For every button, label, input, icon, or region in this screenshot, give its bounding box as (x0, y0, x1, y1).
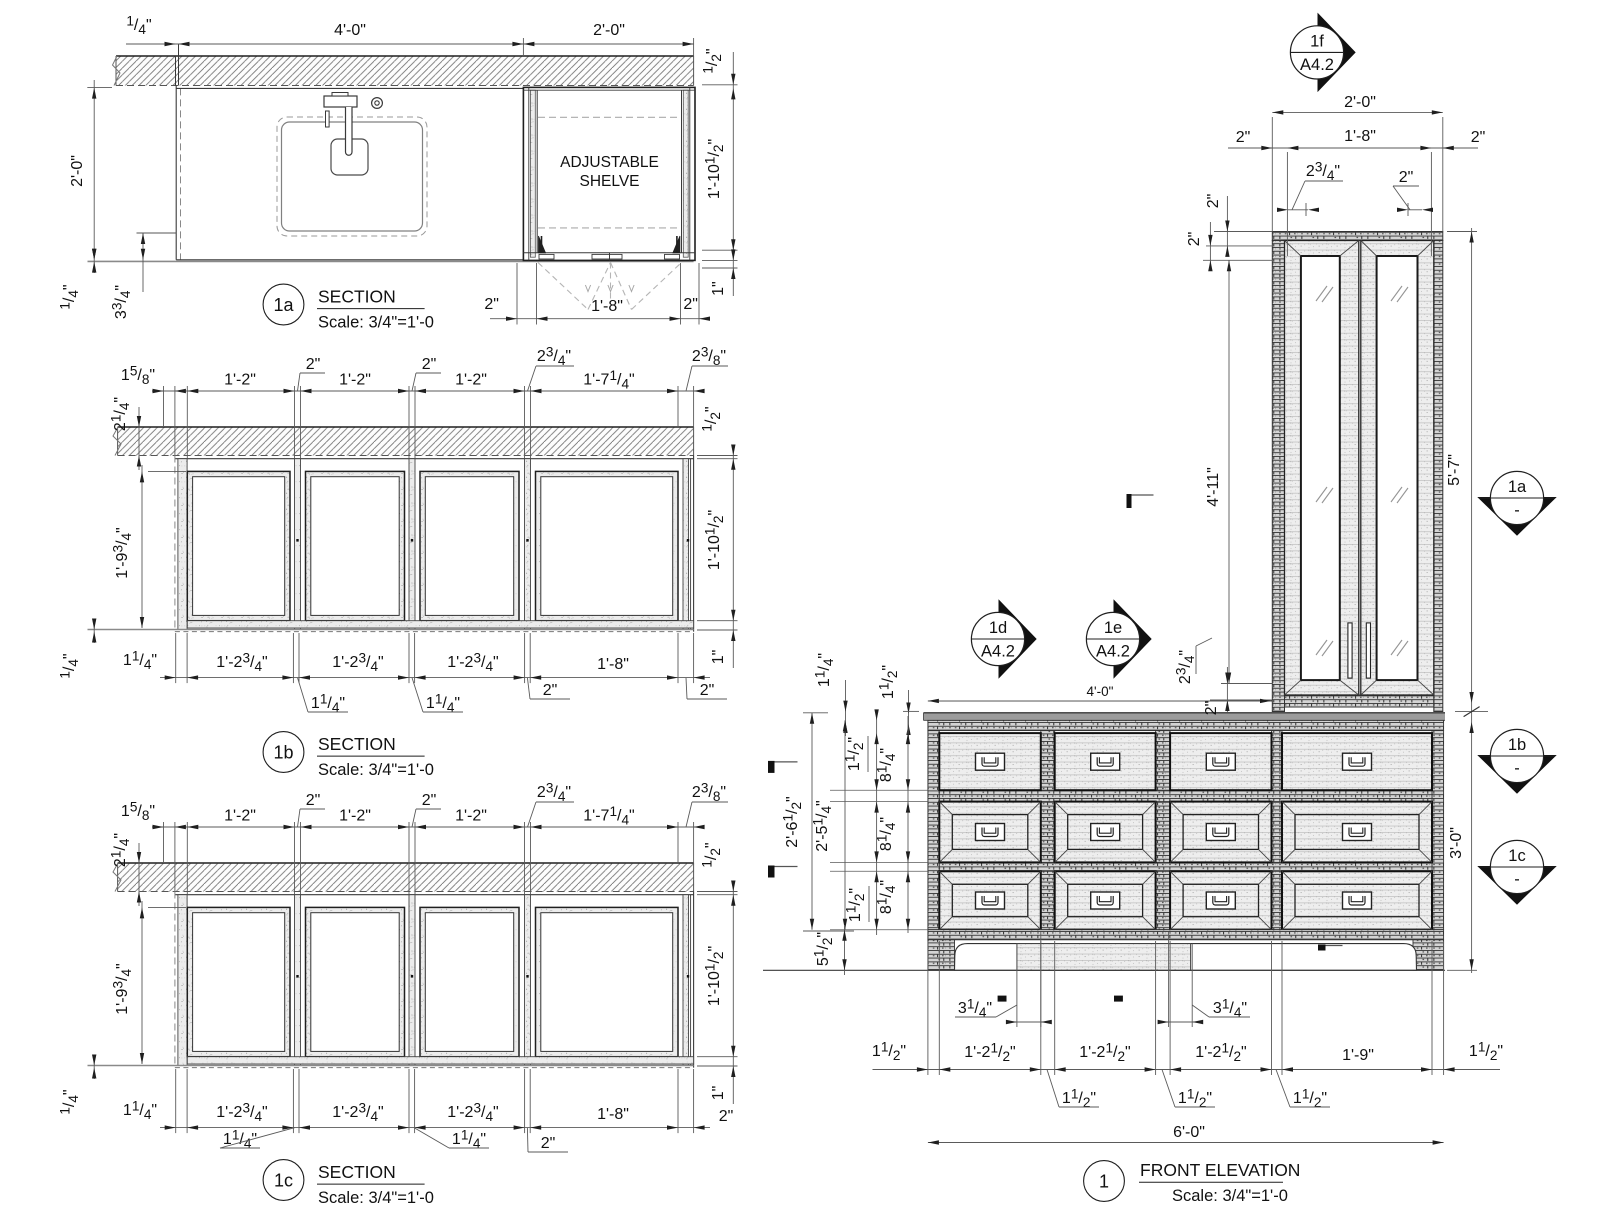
svg-text:31/4": 31/4" (1213, 996, 1247, 1019)
svg-text:ADJUSTABLE: ADJUSTABLE (560, 154, 659, 171)
svg-text:SECTION: SECTION (318, 734, 396, 754)
svg-text:2": 2" (1236, 129, 1251, 146)
svg-text:2'-0": 2'-0" (593, 22, 625, 39)
svg-text:11/2": 11/2" (1469, 1039, 1503, 1062)
svg-text:1'-2": 1'-2" (339, 808, 371, 825)
svg-text:A4.2: A4.2 (1096, 643, 1130, 661)
svg-text:23/4": 23/4" (1306, 159, 1340, 182)
svg-text:81/4": 81/4" (874, 817, 897, 851)
svg-text:1'-8": 1'-8" (597, 1106, 629, 1123)
svg-text:21/4": 21/4" (108, 833, 131, 867)
svg-text:2": 2" (1471, 129, 1486, 146)
svg-text:4'-11": 4'-11" (1205, 467, 1222, 507)
svg-text:11/2": 11/2" (1178, 1086, 1212, 1109)
svg-text:1c: 1c (274, 1171, 293, 1191)
svg-text:-: - (1514, 871, 1520, 889)
svg-text:81/4": 81/4" (874, 880, 897, 914)
svg-text:2": 2" (1399, 169, 1414, 186)
svg-text:1'-2": 1'-2" (339, 372, 371, 389)
svg-text:11/4": 11/4" (123, 648, 157, 671)
svg-text:4'-0": 4'-0" (334, 22, 366, 39)
svg-text:81/4": 81/4" (874, 748, 897, 782)
svg-text:SECTION: SECTION (318, 1162, 396, 1182)
svg-text:SHELVE: SHELVE (579, 173, 639, 190)
svg-text:1b: 1b (1508, 736, 1526, 754)
svg-text:2": 2" (422, 792, 437, 809)
svg-text:11/4": 11/4" (311, 691, 345, 714)
svg-text:23/4": 23/4" (537, 344, 571, 367)
svg-text:1a: 1a (273, 295, 294, 315)
svg-text:2": 2" (700, 682, 715, 699)
svg-text:2": 2" (541, 1135, 556, 1152)
svg-text:4'-0": 4'-0" (1087, 684, 1114, 699)
svg-text:1": 1" (710, 281, 727, 296)
svg-text:1'-8": 1'-8" (1344, 128, 1376, 145)
svg-text:11/2": 11/2" (1062, 1086, 1096, 1109)
svg-text:1d: 1d (989, 619, 1007, 637)
svg-text:2": 2" (484, 296, 499, 313)
svg-text:1": 1" (710, 650, 727, 665)
svg-text:33/4": 33/4" (109, 285, 132, 319)
svg-text:11/4": 11/4" (452, 1127, 486, 1150)
svg-text:1'-2": 1'-2" (224, 372, 256, 389)
svg-text:2": 2" (719, 1108, 734, 1125)
svg-text:3'-0": 3'-0" (1448, 827, 1465, 859)
svg-text:1: 1 (1099, 1172, 1109, 1192)
svg-text:15/8": 15/8" (121, 799, 155, 822)
svg-text:-: - (1514, 760, 1520, 778)
svg-text:2": 2" (1186, 232, 1203, 247)
svg-text:FRONT ELEVATION: FRONT ELEVATION (1140, 1160, 1300, 1180)
svg-text:11/2": 11/2" (876, 665, 899, 699)
svg-text:A4.2: A4.2 (981, 643, 1015, 661)
svg-text:1e: 1e (1104, 619, 1122, 637)
svg-text:1c: 1c (1508, 847, 1525, 865)
svg-text:1f: 1f (1310, 32, 1324, 50)
svg-text:Scale: 3/4"=1'-0: Scale: 3/4"=1'-0 (318, 1189, 434, 1207)
svg-text:A4.2: A4.2 (1300, 56, 1334, 74)
svg-text:1'-9": 1'-9" (1342, 1047, 1374, 1064)
svg-text:11/2": 11/2" (843, 888, 866, 922)
svg-text:1'-2": 1'-2" (224, 808, 256, 825)
svg-text:11/2": 11/2" (842, 737, 865, 771)
svg-text:1a: 1a (1508, 478, 1527, 496)
svg-text:2": 2" (543, 682, 558, 699)
svg-text:1'-2": 1'-2" (455, 808, 487, 825)
svg-text:11/2": 11/2" (872, 1039, 906, 1062)
svg-text:Scale: 3/4"=1'-0: Scale: 3/4"=1'-0 (318, 314, 434, 332)
svg-text:11/4": 11/4" (426, 691, 460, 714)
svg-text:2": 2" (306, 356, 321, 373)
svg-text:SECTION: SECTION (318, 287, 396, 307)
svg-text:21/4": 21/4" (108, 397, 131, 431)
svg-text:23/4": 23/4" (537, 780, 571, 803)
svg-text:51/2": 51/2" (811, 932, 834, 966)
svg-text:2'-0": 2'-0" (69, 155, 86, 187)
svg-text:23/8": 23/8" (692, 780, 726, 803)
svg-text:1'-2": 1'-2" (455, 372, 487, 389)
svg-text:2'-0": 2'-0" (1344, 94, 1376, 111)
svg-text:2": 2" (1205, 194, 1222, 209)
svg-text:2": 2" (683, 296, 698, 313)
svg-text:5'-7": 5'-7" (1446, 454, 1463, 486)
svg-text:15/8": 15/8" (121, 363, 155, 386)
svg-text:Scale: 3/4"=1'-0: Scale: 3/4"=1'-0 (318, 761, 434, 779)
svg-text:1'-8": 1'-8" (597, 656, 629, 673)
svg-text:11/4": 11/4" (123, 1098, 157, 1121)
svg-text:6'-0": 6'-0" (1173, 1124, 1205, 1141)
svg-text:1": 1" (710, 1086, 727, 1101)
svg-text:-: - (1514, 502, 1520, 520)
svg-text:2": 2" (422, 356, 437, 373)
svg-text:11/4": 11/4" (812, 653, 835, 687)
svg-text:1b: 1b (273, 743, 293, 763)
svg-text:23/8": 23/8" (692, 344, 726, 367)
svg-text:23/4": 23/4" (1173, 650, 1196, 684)
svg-text:Scale: 3/4"=1'-0: Scale: 3/4"=1'-0 (1172, 1187, 1288, 1205)
svg-text:1'-8": 1'-8" (591, 298, 623, 315)
svg-text:31/4": 31/4" (958, 996, 992, 1019)
svg-text:2": 2" (306, 792, 321, 809)
svg-text:11/2": 11/2" (1293, 1086, 1327, 1109)
svg-text:2": 2" (1203, 701, 1220, 716)
